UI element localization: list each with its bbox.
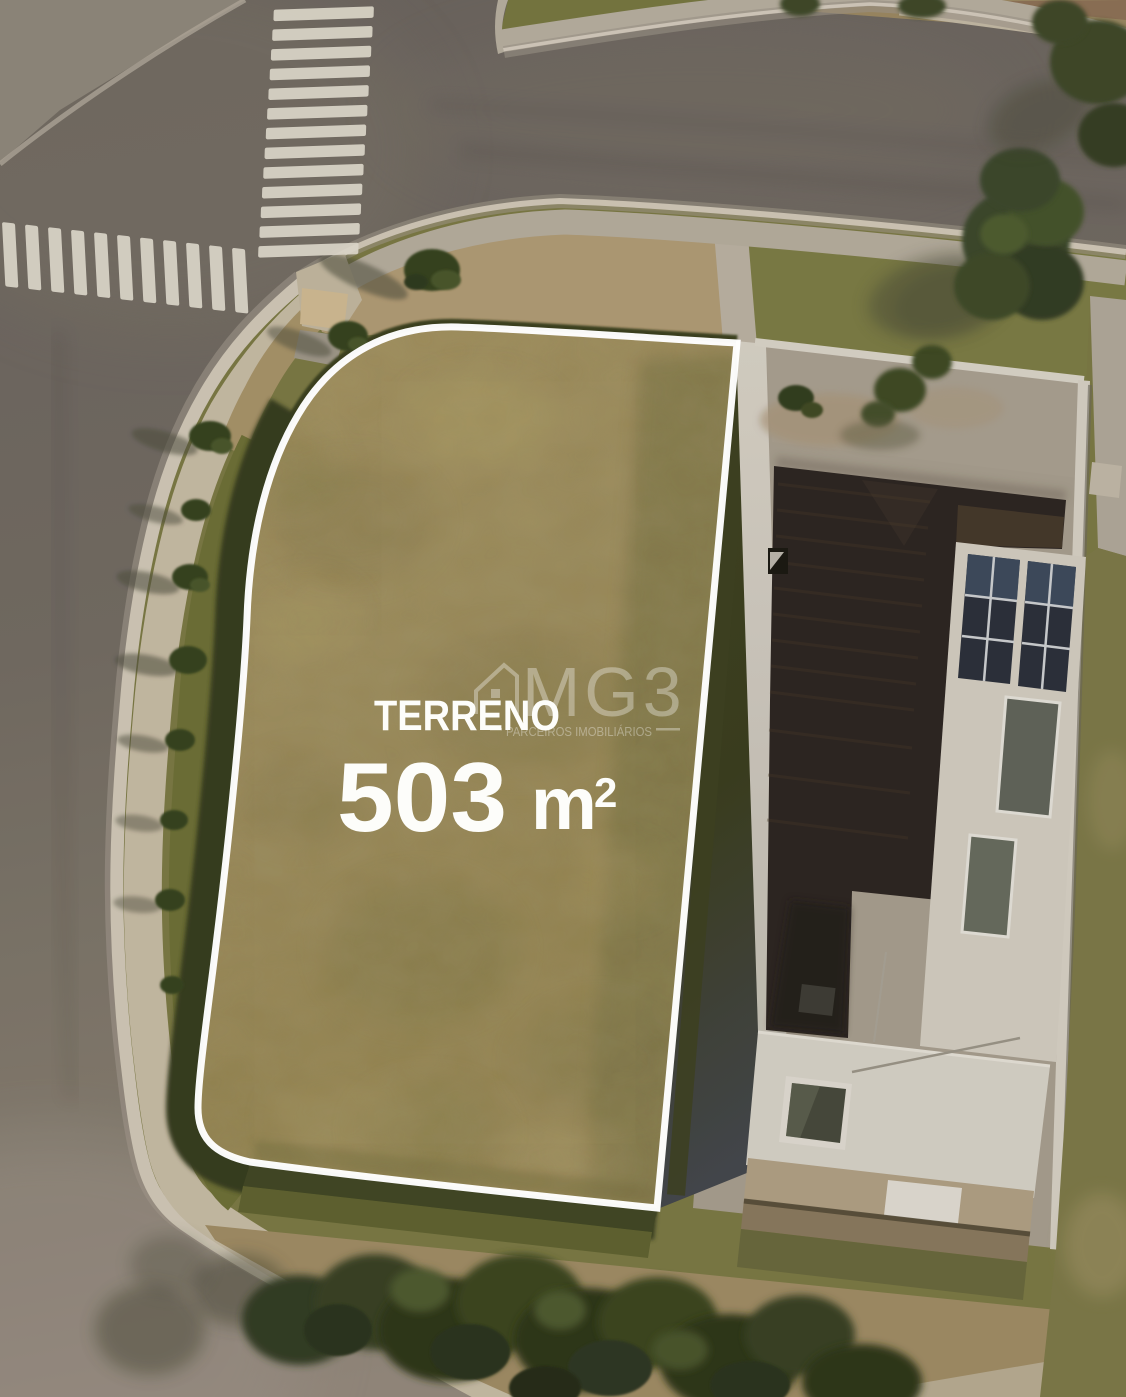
svg-text:TERRENO: TERRENO [374,692,560,740]
svg-text:2: 2 [594,769,617,816]
svg-text:503: 503 [337,742,507,852]
svg-text:m: m [531,762,597,845]
